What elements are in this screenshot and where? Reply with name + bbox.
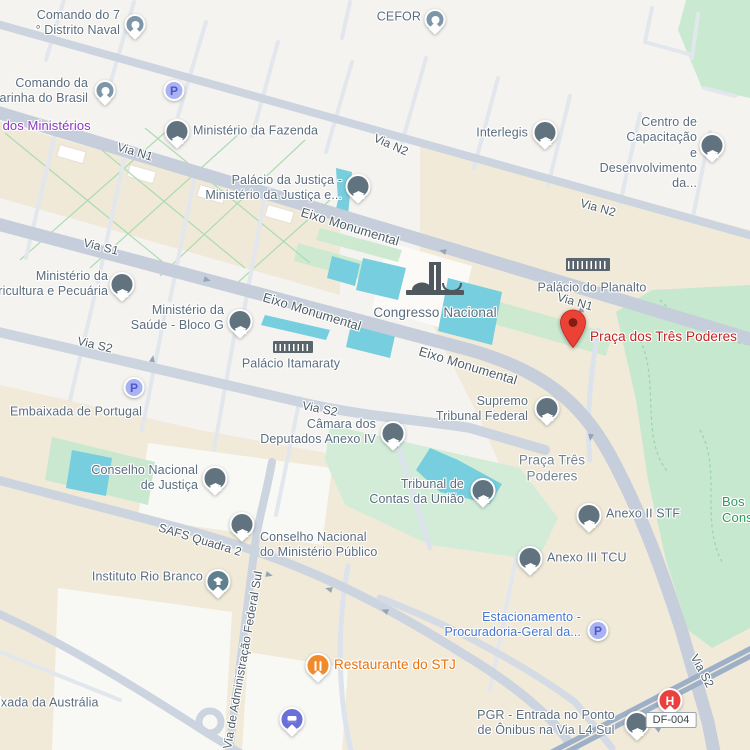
label-ministerio-fazenda[interactable]: Ministério da Fazenda xyxy=(193,123,318,138)
pin-supremo-tribunal-federal[interactable] xyxy=(535,396,560,424)
pin-parking-west[interactable]: P xyxy=(124,377,145,398)
pin-instituto-rio-branco[interactable] xyxy=(206,569,231,597)
lodging-icon xyxy=(288,716,297,723)
label-centro-capacitacao[interactable]: Centro de Capacitação e Desenvolvimento … xyxy=(600,115,697,191)
pin-conselho-nacional-justica[interactable] xyxy=(203,466,228,494)
pin-comando-marinha[interactable] xyxy=(95,80,116,104)
restaurant-icon xyxy=(313,661,323,671)
label-bosque[interactable]: Bos Cons xyxy=(722,494,750,526)
route-shield-df-004: DF-004 xyxy=(646,712,697,728)
pin-interlegis[interactable] xyxy=(533,120,558,148)
pin-ministerio-fazenda[interactable] xyxy=(165,119,190,147)
red-pin-icon xyxy=(560,309,587,349)
pin-anexo-iii-tcu[interactable] xyxy=(518,546,543,574)
palacio-itamaraty-building-icon xyxy=(273,341,313,353)
pin-anexo-ii-stf[interactable] xyxy=(577,503,602,531)
pin-ministerio-agricultura[interactable] xyxy=(110,272,135,300)
label-comando-7-distrito-naval[interactable]: Comando do 7 ° Distrito Naval xyxy=(36,8,120,39)
label-palacio-planalto[interactable]: Palácio do Planalto xyxy=(538,280,647,295)
label-interlegis[interactable]: Interlegis xyxy=(476,125,528,140)
pin-restaurante-stj[interactable] xyxy=(306,653,331,681)
label-anexo-iii-tcu[interactable]: Anexo III TCU xyxy=(547,550,627,565)
label-supremo-tribunal-federal[interactable]: Supremo Tribunal Federal xyxy=(436,394,528,425)
graduation-cap-icon xyxy=(212,577,224,586)
label-restaurante-stj[interactable]: Restaurante do STJ xyxy=(334,657,456,673)
pin-comando-7-distrito-naval[interactable] xyxy=(125,14,146,38)
destination-marker-praca-tres-poderes[interactable] xyxy=(560,309,587,354)
label-palacio-itamaraty[interactable]: Palácio Itamaraty xyxy=(242,356,340,371)
pin-parking-estacionamento-pgr[interactable]: P xyxy=(588,620,609,641)
label-comando-marinha[interactable]: Comando da Marinha do Brasil xyxy=(0,76,88,107)
pin-ministerio-saude[interactable] xyxy=(228,309,253,337)
label-conselho-nacional-justica[interactable]: Conselho Nacional de Justiça xyxy=(91,463,198,494)
label-embaixada-portugal[interactable]: Embaixada de Portugal xyxy=(10,404,142,419)
label-anexo-ii-stf[interactable]: Anexo II STF xyxy=(606,506,680,521)
pin-lodging[interactable] xyxy=(280,707,305,735)
map-artwork xyxy=(0,0,750,750)
pin-palacio-justica[interactable] xyxy=(346,174,371,202)
parking-icon: P xyxy=(594,624,602,638)
pin-camara-deputados-anexo-iv[interactable] xyxy=(381,421,406,449)
label-camara-deputados-anexo-iv[interactable]: Câmara dos Deputados Anexo IV xyxy=(260,417,376,448)
pin-parking-north[interactable]: P xyxy=(164,80,185,101)
label-embaixada-australia[interactable]: Embaixada da Austrália xyxy=(0,695,99,710)
label-praca-tres-poderes-destination[interactable]: Praça dos Três Poderes xyxy=(590,329,737,345)
label-conselho-ministerio-publico[interactable]: Conselho Nacional do Ministério Público xyxy=(260,530,377,561)
label-pgr-entrada-onibus[interactable]: PGR - Entrada no Ponto de Ônibus na Via … xyxy=(477,708,615,739)
map-canvas[interactable]: Via N1 Via N2 Via N2 Eixo Monumental Via… xyxy=(0,0,750,750)
label-instituto-rio-branco[interactable]: Instituto Rio Branco xyxy=(92,569,203,584)
label-estacionamento-pgr[interactable]: Estacionamento - Procuradoria-Geral da..… xyxy=(445,610,582,641)
pin-centro-capacitacao[interactable] xyxy=(700,133,725,161)
label-palacio-justica[interactable]: Palácio da Justiça - Ministério da Justi… xyxy=(205,173,342,204)
label-cefor[interactable]: CEFOR xyxy=(377,9,421,24)
label-praca-tres-poderes-area[interactable]: Praça Três Poderes xyxy=(519,453,585,486)
road-label-via-dos-ministerios: Via dos Ministérios xyxy=(0,118,91,134)
label-tribunal-contas-uniao[interactable]: Tribunal de Contas da União xyxy=(369,477,464,508)
pin-conselho-ministerio-publico[interactable] xyxy=(230,512,255,540)
parking-icon: P xyxy=(170,84,178,98)
label-ministerio-agricultura[interactable]: Ministério da Agricultura e Pecuária xyxy=(0,269,108,300)
label-congresso-nacional[interactable]: Congresso Nacional xyxy=(373,305,496,321)
pin-cefor[interactable] xyxy=(425,9,446,33)
palacio-planalto-building-icon xyxy=(566,258,610,271)
pin-tribunal-contas-uniao[interactable] xyxy=(471,478,496,506)
label-ministerio-saude[interactable]: Ministério da Saúde - Bloco G xyxy=(131,303,224,334)
parking-icon: P xyxy=(130,381,138,395)
